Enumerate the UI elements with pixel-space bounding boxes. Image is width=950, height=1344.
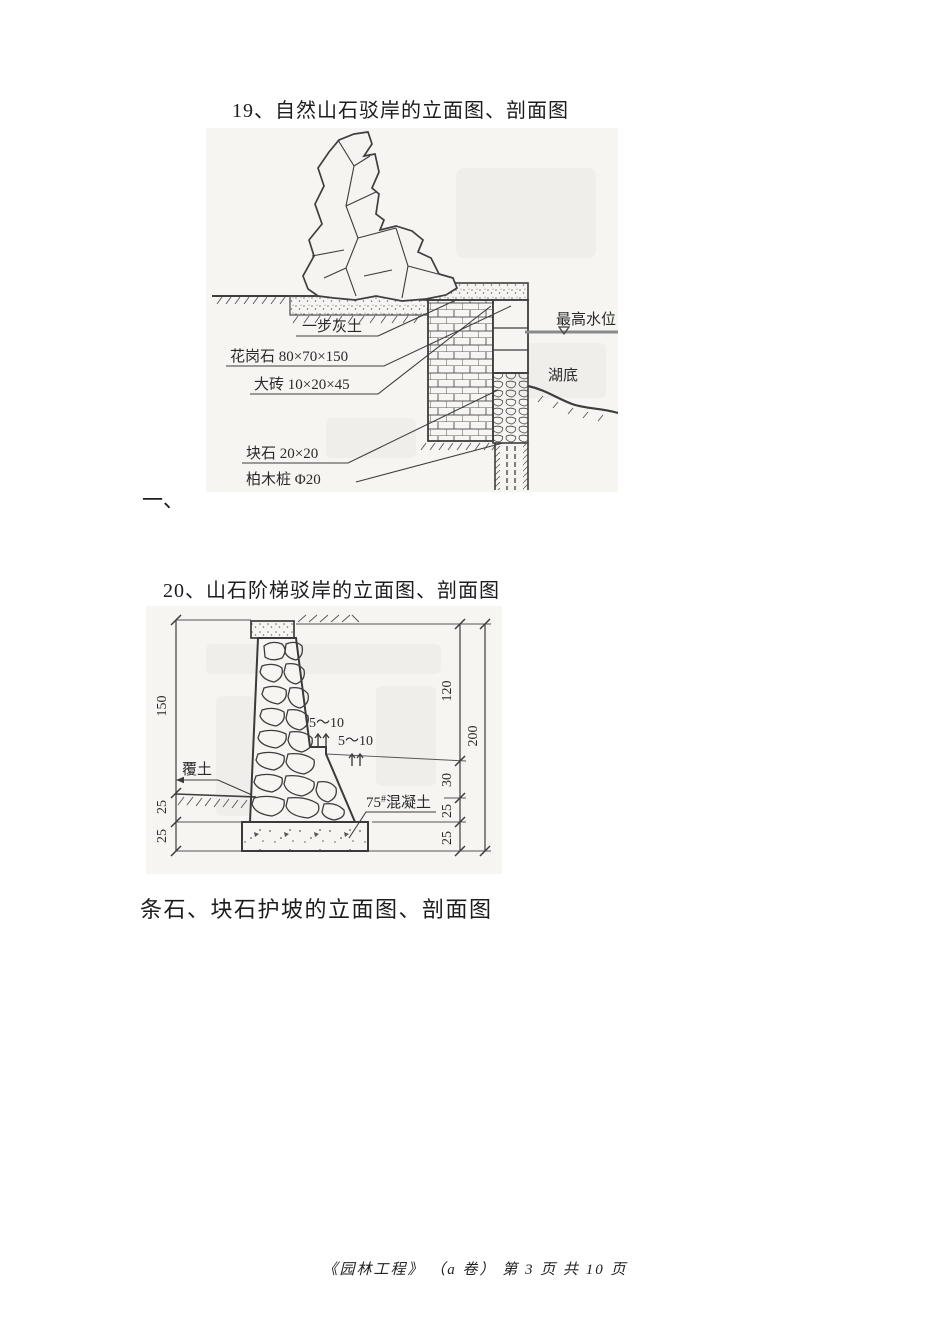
block-stone-label: 块石 20×20 [246,445,318,462]
dim-25c: 25 [440,804,455,818]
lime-soil-label: 一步灰土 [302,318,362,335]
page-footer: 《园林工程》 （a 卷） 第 3 页 共 10 页 [0,1258,950,1279]
concrete-word: 混凝土 [386,794,431,811]
dim-200: 200 [466,726,481,747]
caption-slope: 条石、块石护坡的立面图、剖面图 [140,892,493,924]
figure-natural-rock-revetment: 最高水位 湖底 一步灰土 花岗石 80×70×150 大砖 10×20×45 块… [206,128,618,492]
gap-label-2: 5～10 [338,734,373,749]
ink-bleed [216,696,256,816]
figure-stepped-rock-revetment: 150 25 25 120 30 25 25 200 [146,606,502,874]
concrete-base [242,822,368,851]
heading-19: 19、自然山石驳岸的立面图、剖面图 [232,94,569,123]
lake-bottom-label: 湖底 [548,367,578,384]
ink-bleed [376,686,436,786]
cypress-pile-label: 柏木桩 Φ20 [246,471,321,488]
dim-25b: 25 [155,829,170,843]
heading-20: 20、山石阶梯驳岸的立面图、剖面图 [163,574,500,603]
brick-wall [421,300,497,450]
ink-bleed [206,644,441,674]
gap-label-1: 5～10 [309,716,344,731]
ink-bleed [456,168,596,258]
granite-facing [493,300,528,373]
rubble-blocks [493,373,528,443]
section-marker: 一、 [142,484,184,514]
dim-150: 150 [155,696,170,717]
dim-120: 120 [440,681,455,702]
cover-soil-label: 覆土 [182,761,212,778]
brick-label: 大砖 10×20×45 [254,376,350,393]
dim-25d: 25 [440,831,455,845]
dim-30: 30 [440,773,455,787]
dim-25a: 25 [155,800,170,814]
svg-text:75#混凝土: 75#混凝土 [366,794,431,811]
granite-label: 花岗石 80×70×150 [230,348,348,365]
document-page: 19、自然山石驳岸的立面图、剖面图 [0,0,950,1344]
concrete-grade: 75 [366,795,381,811]
water-level-label: 最高水位 [556,311,616,328]
cap-stone [251,621,294,638]
